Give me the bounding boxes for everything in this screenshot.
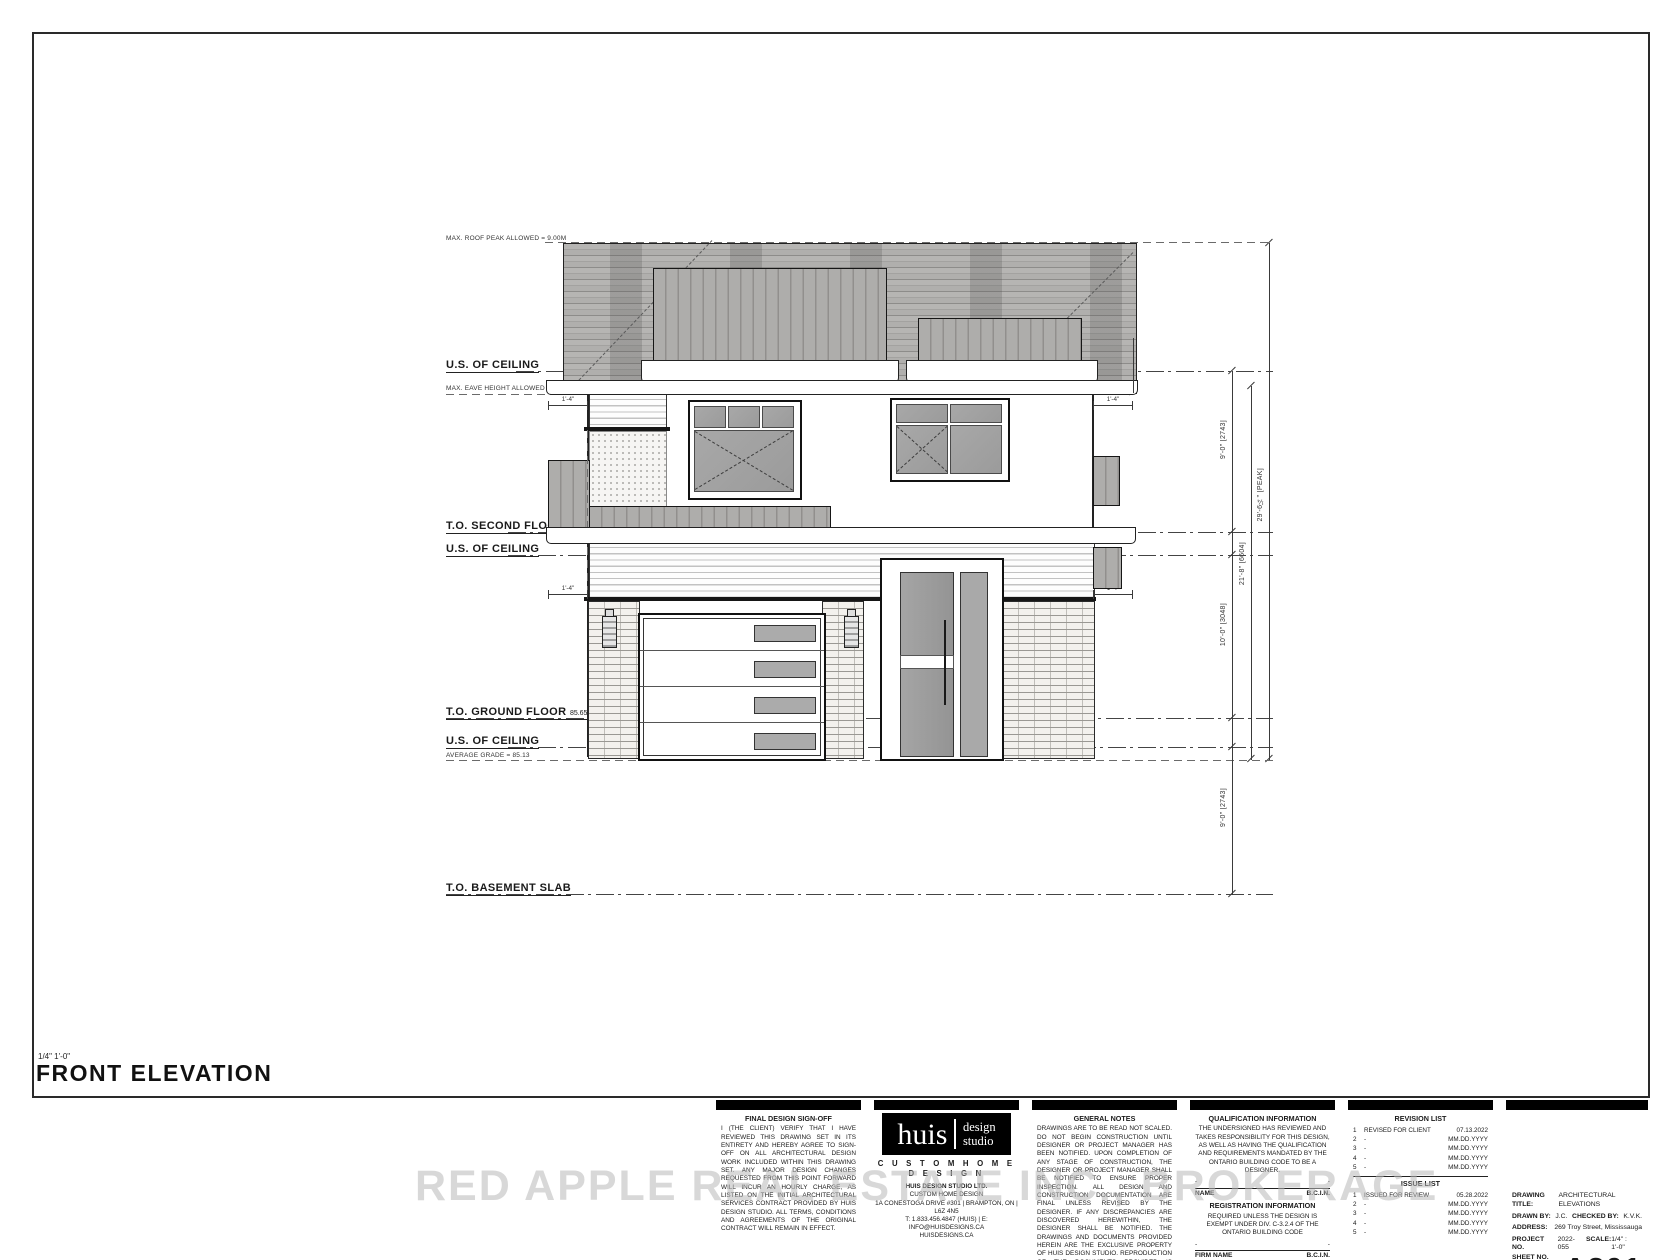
issue-date: MM.DD.YYYY bbox=[1448, 1201, 1488, 1209]
average-grade-label: AVERAGE GRADE = 85.13 bbox=[446, 752, 530, 759]
list-divider bbox=[1353, 1176, 1488, 1177]
issue-desc: - bbox=[1364, 1210, 1448, 1218]
drawing-title-label: DRAWING TITLE: bbox=[1512, 1192, 1559, 1210]
garage-window-insert bbox=[754, 733, 816, 750]
rev-date: MM.DD.YYYY bbox=[1448, 1155, 1488, 1163]
signature-placeholder: - bbox=[1195, 1178, 1197, 1187]
studio-website: HUISDESIGNS.CA bbox=[874, 1232, 1019, 1240]
average-grade-line bbox=[446, 760, 1273, 761]
garage-panel-line bbox=[640, 650, 824, 651]
second-floor-right-window bbox=[890, 398, 1010, 482]
rev-desc: - bbox=[1364, 1155, 1448, 1163]
sheet-no-row: SHEET NO. A201 bbox=[1512, 1254, 1642, 1260]
issue-no: 4 bbox=[1353, 1220, 1364, 1228]
qualification-body: QUALIFICATION INFORMATION THE UNDERSIGNE… bbox=[1190, 1110, 1335, 1260]
window-lower-pane bbox=[896, 425, 948, 474]
logo-wordmark: huis bbox=[897, 1121, 947, 1148]
issue-row: 5-MM.DD.YYYY bbox=[1353, 1229, 1488, 1237]
block-bar bbox=[1032, 1100, 1177, 1110]
general-notes-block: GENERAL NOTES DRAWINGS ARE TO BE READ NO… bbox=[1032, 1100, 1177, 1260]
logo-divider bbox=[954, 1119, 956, 1149]
scale-label: SCALE: bbox=[1586, 1236, 1611, 1245]
hidden-wall-line bbox=[587, 430, 588, 597]
signature-placeholder: - bbox=[1328, 1241, 1330, 1250]
bcin-label: B.C.I.N. bbox=[1307, 1252, 1330, 1260]
firm-bcin-row: FIRM NAME B.C.I.N. bbox=[1195, 1250, 1330, 1260]
rev-desc: REVISED FOR CLIENT bbox=[1364, 1127, 1448, 1135]
checked-by-label: CHECKED BY: bbox=[1572, 1213, 1619, 1222]
logo-tagline: C U S T O M H O M E D E S I G N bbox=[874, 1159, 1019, 1179]
rev-date: MM.DD.YYYY bbox=[1448, 1145, 1488, 1153]
drawn-by-label: DRAWN BY: bbox=[1512, 1213, 1551, 1222]
window-transom-pane bbox=[950, 404, 1002, 423]
revision-row: 2-MM.DD.YYYY bbox=[1353, 1136, 1488, 1144]
drawn-by-value: J.C. bbox=[1555, 1213, 1567, 1222]
stucco-panel bbox=[589, 431, 667, 508]
eave-offset-dim-line bbox=[1093, 594, 1133, 595]
studio-logo-block: huis design studio C U S T O M H O M E D… bbox=[874, 1100, 1019, 1260]
block-bar bbox=[1506, 1100, 1648, 1110]
brick-wall-right bbox=[1002, 601, 1095, 759]
notes-body: GENERAL NOTES DRAWINGS ARE TO BE READ NO… bbox=[1032, 1110, 1177, 1260]
peak-height-dim-label: 29'-6¼" [PEAK] bbox=[1257, 468, 1264, 522]
signoff-body: FINAL DESIGN SIGN-OFF I (THE CLIENT) VER… bbox=[716, 1110, 861, 1260]
registration-text: REQUIRED UNLESS THE DESIGN IS EXEMPT UND… bbox=[1195, 1213, 1330, 1238]
max-roof-peak-line bbox=[545, 242, 1273, 243]
sheet-title-block: DRAWING TITLE: ARCHITECTURAL ELEVATIONS … bbox=[1506, 1100, 1648, 1260]
address-value: 269 Troy Street, Mississauga bbox=[1554, 1224, 1642, 1233]
block-bar bbox=[716, 1100, 861, 1110]
basement-storey-dim-label: 9'-0" [2743] bbox=[1220, 788, 1227, 827]
issue-no: 2 bbox=[1353, 1201, 1364, 1209]
qualification-block: QUALIFICATION INFORMATION THE UNDERSIGNE… bbox=[1190, 1100, 1335, 1260]
coach-light-icon bbox=[602, 616, 617, 648]
drawing-sheet: MAX. ROOF PEAK ALLOWED = 9.00M U.S. OF C… bbox=[0, 0, 1680, 1260]
garage-panel-line bbox=[640, 686, 824, 687]
sheet-no-label: SHEET NO. bbox=[1512, 1254, 1549, 1260]
revision-row: 1REVISED FOR CLIENT07.13.2022 bbox=[1353, 1127, 1488, 1135]
issue-row: 4-MM.DD.YYYY bbox=[1353, 1220, 1488, 1228]
issue-desc: ISSUED FOR REVIEW bbox=[1364, 1192, 1448, 1200]
garage-door bbox=[638, 613, 826, 761]
eave-offset-dim-label: 1'-4" bbox=[548, 396, 588, 403]
studio-contact: T: 1.833.456.4847 (HUIS) | E: INFO@HUISD… bbox=[874, 1216, 1019, 1232]
issue-desc: - bbox=[1364, 1220, 1448, 1228]
signoff-text: I (THE CLIENT) VERIFY THAT I HAVE REVIEW… bbox=[721, 1125, 856, 1233]
siding-trim-band bbox=[584, 427, 670, 431]
rev-date: MM.DD.YYYY bbox=[1448, 1164, 1488, 1172]
address-row: ADDRESS: 269 Troy Street, Mississauga bbox=[1512, 1224, 1642, 1233]
qualification-title: QUALIFICATION INFORMATION bbox=[1195, 1114, 1330, 1123]
qualification-text: THE UNDERSIGNED HAS REVIEWED AND TAKES R… bbox=[1195, 1125, 1330, 1175]
revision-row: 4-MM.DD.YYYY bbox=[1353, 1155, 1488, 1163]
logo-design: design bbox=[963, 1120, 996, 1134]
eave-offset-dim-line bbox=[1093, 405, 1133, 406]
right-wall-return-upper bbox=[1093, 456, 1120, 506]
garage-window-insert bbox=[754, 661, 816, 678]
signature-placeholder: - bbox=[1328, 1178, 1330, 1187]
door-sidelite bbox=[960, 572, 988, 757]
checked-by-value: K.V.K. bbox=[1623, 1213, 1642, 1222]
issue-date: MM.DD.YYYY bbox=[1448, 1210, 1488, 1218]
main-eave-fascia bbox=[546, 380, 1138, 395]
storey-dim-line bbox=[1232, 371, 1233, 895]
ground-trim-band bbox=[584, 597, 1096, 601]
right-dormer bbox=[918, 318, 1082, 364]
signoff-title: FINAL DESIGN SIGN-OFF bbox=[721, 1114, 856, 1123]
window-transom-pane bbox=[694, 406, 726, 428]
issue-row: 2-MM.DD.YYYY bbox=[1353, 1201, 1488, 1209]
issue-date: MM.DD.YYYY bbox=[1448, 1229, 1488, 1237]
max-roof-peak-label: MAX. ROOF PEAK ALLOWED = 9.00M bbox=[446, 235, 566, 242]
logo-subtext: design studio bbox=[963, 1120, 996, 1149]
revision-row: 3-MM.DD.YYYY bbox=[1353, 1145, 1488, 1153]
ground-floor-siding bbox=[589, 542, 1095, 597]
bcin-label: B.C.I.N. bbox=[1307, 1190, 1330, 1199]
final-design-signoff-block: FINAL DESIGN SIGN-OFF I (THE CLIENT) VER… bbox=[716, 1100, 861, 1260]
second-floor-siding bbox=[589, 394, 667, 427]
studio-name: HUIS DESIGN STUDIO LTD. bbox=[874, 1183, 1019, 1191]
name-label: NAME bbox=[1195, 1190, 1214, 1199]
soffit-dim-line bbox=[1133, 338, 1134, 393]
window-transom-pane bbox=[728, 406, 760, 428]
signature-placeholder: - bbox=[1195, 1241, 1197, 1250]
eave-height-dim-label: 21'-8" [6604] bbox=[1239, 542, 1246, 585]
signature-placeholder-row: - - bbox=[1195, 1241, 1330, 1250]
rev-no: 4 bbox=[1353, 1155, 1364, 1163]
issue-row: 1ISSUED FOR REVIEW05.28.2022 bbox=[1353, 1192, 1488, 1200]
revision-issue-block: REVISION LIST 1REVISED FOR CLIENT07.13.2… bbox=[1348, 1100, 1493, 1260]
rev-date: MM.DD.YYYY bbox=[1448, 1136, 1488, 1144]
eave-offset-dim-label: 1'-4" bbox=[548, 585, 588, 592]
rev-no: 2 bbox=[1353, 1136, 1364, 1144]
eave-height-dim-line bbox=[1251, 386, 1252, 760]
logo-studio: studio bbox=[963, 1134, 996, 1148]
second-storey-dim-label: 9'-0" [2743] bbox=[1220, 420, 1227, 459]
rev-desc: - bbox=[1364, 1136, 1448, 1144]
sheet-number: A201 bbox=[1564, 1254, 1642, 1260]
block-bar bbox=[1190, 1100, 1335, 1110]
ground-storey-dim-label: 10'-0" [3048] bbox=[1220, 603, 1227, 646]
rev-no: 1 bbox=[1353, 1127, 1364, 1135]
issue-no: 3 bbox=[1353, 1210, 1364, 1218]
eave-offset-dim-line bbox=[548, 405, 588, 406]
drawn-checked-row: DRAWN BY: J.C. CHECKED BY: K.V.K. bbox=[1512, 1213, 1642, 1222]
right-wall-return-lower bbox=[1093, 547, 1122, 589]
to-ground-floor-text: T.O. GROUND FLOOR bbox=[446, 706, 566, 718]
title-strip: FINAL DESIGN SIGN-OFF I (THE CLIENT) VER… bbox=[716, 1100, 1648, 1246]
rev-desc: - bbox=[1364, 1145, 1448, 1153]
issue-list-title: ISSUE LIST bbox=[1353, 1179, 1488, 1188]
registration-title: REGISTRATION INFORMATION bbox=[1195, 1201, 1330, 1210]
revision-row: 5-MM.DD.YYYY bbox=[1353, 1164, 1488, 1172]
window-main-pane bbox=[694, 430, 794, 492]
garage-panel-line bbox=[640, 722, 824, 723]
rev-date: 07.13.2022 bbox=[1448, 1127, 1488, 1135]
door-handle bbox=[944, 620, 946, 705]
rev-no: 5 bbox=[1353, 1164, 1364, 1172]
window-transom-pane bbox=[762, 406, 794, 428]
notes-title: GENERAL NOTES bbox=[1037, 1114, 1172, 1123]
signature-placeholder-row: - - bbox=[1195, 1178, 1330, 1187]
studio-line: CUSTOM HOME DESIGN bbox=[874, 1191, 1019, 1199]
drawing-title: FRONT ELEVATION bbox=[36, 1060, 272, 1087]
eave-offset-dim-line bbox=[548, 594, 588, 595]
titleblock-rows: DRAWING TITLE: ARCHITECTURAL ELEVATIONS … bbox=[1511, 1190, 1643, 1260]
drawing-title-value: ARCHITECTURAL ELEVATIONS bbox=[1559, 1192, 1643, 1210]
drawing-title-row: DRAWING TITLE: ARCHITECTURAL ELEVATIONS bbox=[1512, 1192, 1642, 1210]
revision-body: REVISION LIST 1REVISED FOR CLIENT07.13.2… bbox=[1348, 1110, 1493, 1260]
window-lower-pane bbox=[950, 425, 1002, 474]
coach-light-icon bbox=[844, 616, 859, 648]
issue-date: MM.DD.YYYY bbox=[1448, 1220, 1488, 1228]
firm-name-label: FIRM NAME bbox=[1195, 1252, 1232, 1260]
studio-address: 1A CONESTOGA DRIVE #301 | BRAMPTON, ON |… bbox=[874, 1200, 1019, 1216]
issue-no: 1 bbox=[1353, 1192, 1364, 1200]
peak-height-dim-line bbox=[1269, 243, 1270, 760]
second-floor-fascia bbox=[546, 527, 1136, 544]
block-bar bbox=[874, 1100, 1019, 1110]
issue-date: 05.28.2022 bbox=[1448, 1192, 1488, 1200]
entry-door-assembly bbox=[880, 558, 1004, 761]
notes-text: DRAWINGS ARE TO BE READ NOT SCALED. DO N… bbox=[1037, 1125, 1172, 1260]
issue-no: 5 bbox=[1353, 1229, 1364, 1237]
block-bar bbox=[1348, 1100, 1493, 1110]
garage-window-insert bbox=[754, 625, 816, 642]
eave-offset-dim-label: 1'-4" bbox=[1093, 396, 1133, 403]
name-bcin-row: NAME B.C.I.N. bbox=[1195, 1188, 1330, 1199]
titleblock-body: DRAWING TITLE: ARCHITECTURAL ELEVATIONS … bbox=[1506, 1110, 1648, 1260]
issue-desc: - bbox=[1364, 1229, 1448, 1237]
left-wall-return bbox=[548, 460, 590, 534]
center-dormer bbox=[653, 268, 887, 364]
window-transom-pane bbox=[896, 404, 948, 423]
rev-no: 3 bbox=[1353, 1145, 1364, 1153]
second-floor-center-window bbox=[688, 400, 802, 500]
address-label: ADDRESS: bbox=[1512, 1224, 1548, 1233]
garage-window-insert bbox=[754, 697, 816, 714]
huis-logo: huis design studio bbox=[882, 1113, 1011, 1155]
revision-list-title: REVISION LIST bbox=[1353, 1114, 1488, 1123]
issue-desc: - bbox=[1364, 1201, 1448, 1209]
rev-desc: - bbox=[1364, 1164, 1448, 1172]
issue-row: 3-MM.DD.YYYY bbox=[1353, 1210, 1488, 1218]
to-basement-slab-line bbox=[446, 894, 1273, 895]
project-no-label: PROJECT NO. bbox=[1512, 1236, 1558, 1254]
